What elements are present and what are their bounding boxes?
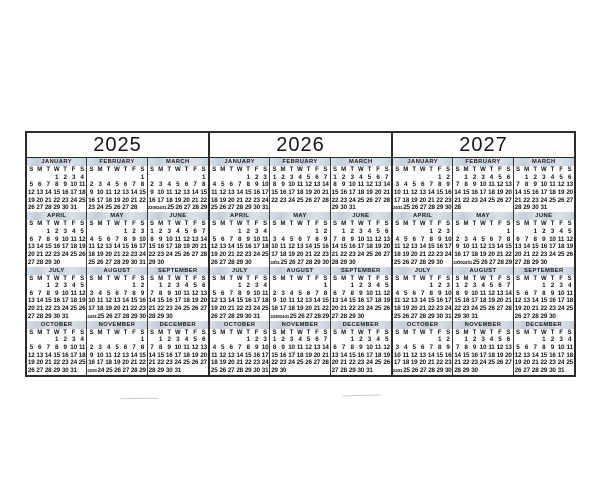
date-cell: 14 bbox=[514, 189, 523, 197]
date-cell: 1 bbox=[427, 228, 435, 236]
week-row: 18192021222324 bbox=[393, 305, 452, 313]
weekday-letter: T bbox=[365, 166, 374, 174]
week-row: 567891011 bbox=[514, 344, 574, 352]
weekday-letter: T bbox=[470, 220, 478, 228]
date-cell: 10 bbox=[365, 344, 374, 352]
date-cell: 30 bbox=[548, 313, 557, 321]
date-cell: 8 bbox=[138, 344, 146, 352]
date-cell: 26 bbox=[304, 360, 312, 368]
date-cell: 10 bbox=[156, 189, 165, 197]
month-name-label: MAY bbox=[270, 212, 329, 220]
weekday-letter: W bbox=[113, 329, 121, 337]
date-cell: 13 bbox=[313, 344, 321, 352]
date-cell: 4 bbox=[261, 228, 269, 236]
date-cell: 23 bbox=[548, 305, 557, 313]
date-cell: 25 bbox=[487, 197, 495, 205]
date-cell: 25 bbox=[393, 313, 401, 321]
date-cell: 29 bbox=[427, 313, 435, 321]
date-cell: 28 bbox=[113, 259, 121, 267]
empty-date-cell bbox=[444, 259, 452, 267]
empty-date-cell bbox=[279, 228, 287, 236]
week-row: 123 bbox=[393, 228, 452, 236]
week-row: 24⁄31252627282930 bbox=[270, 259, 329, 267]
date-cell: 22 bbox=[44, 251, 52, 259]
empty-date-cell bbox=[270, 228, 278, 236]
month-name-label: SEPTEMBER bbox=[331, 267, 391, 275]
date-cell: 13 bbox=[504, 344, 512, 352]
date-cell: 1 bbox=[130, 283, 138, 291]
weekday-header-row: SMTWTFS bbox=[453, 220, 512, 228]
month-2025-october: OCTOBERSMTWTFS12345678910111213141516171… bbox=[27, 321, 87, 375]
empty-date-cell bbox=[565, 259, 574, 267]
weekday-header-row: SMTWTFS bbox=[393, 275, 452, 283]
date-cell: 17 bbox=[393, 360, 401, 368]
date-cell: 22 bbox=[427, 305, 435, 313]
month-week-rows: 1234567891011121314151617181920212223242… bbox=[27, 228, 86, 266]
date-cell: 25 bbox=[78, 360, 86, 368]
month-name-label: DECEMBER bbox=[148, 321, 208, 329]
date-cell: 29 bbox=[540, 367, 549, 375]
weekday-letter: F bbox=[496, 166, 504, 174]
month-name-label: SEPTEMBER bbox=[148, 267, 208, 275]
date-cell: 8 bbox=[462, 344, 470, 352]
date-cell: 26 bbox=[78, 251, 86, 259]
date-cell: 28 bbox=[130, 205, 138, 213]
empty-date-cell bbox=[321, 367, 329, 375]
date-cell: 25 bbox=[289, 313, 297, 321]
month-name-label: JUNE bbox=[331, 212, 391, 220]
weekday-letter: M bbox=[35, 166, 43, 174]
month-name-label: FEBRUARY bbox=[87, 158, 146, 166]
weekday-letter: S bbox=[148, 329, 157, 337]
date-cell: 19 bbox=[304, 189, 312, 197]
week-row: 14151617181920 bbox=[514, 189, 574, 197]
empty-date-cell bbox=[382, 205, 391, 213]
weekday-letter: M bbox=[96, 220, 104, 228]
weekday-letter: S bbox=[514, 275, 523, 283]
weekday-letter: M bbox=[339, 166, 348, 174]
week-row: 123456 bbox=[331, 228, 391, 236]
date-cell: 19 bbox=[401, 251, 409, 259]
weekday-letter: M bbox=[156, 166, 165, 174]
date-cell: 20 bbox=[410, 305, 418, 313]
weekday-letter: W bbox=[296, 166, 304, 174]
weekday-letter: T bbox=[487, 166, 495, 174]
date-cell: 11 bbox=[401, 189, 409, 197]
week-row: 12 bbox=[270, 228, 329, 236]
weekday-letter: M bbox=[401, 275, 409, 283]
date-cell: 29 bbox=[522, 205, 531, 213]
date-cell: 14 bbox=[235, 189, 243, 197]
week-row: 123456 bbox=[148, 283, 208, 291]
date-cell: 15 bbox=[244, 189, 252, 197]
date-cell: 26 bbox=[182, 251, 191, 259]
week-row: 6789101112 bbox=[331, 344, 391, 352]
date-cell: 31 bbox=[252, 313, 260, 321]
date-cell: 3 bbox=[61, 283, 69, 291]
date-cell: 30 bbox=[244, 313, 252, 321]
empty-date-cell bbox=[462, 205, 470, 213]
date-cell: 29 bbox=[339, 259, 348, 267]
week-row: 2627282930 bbox=[210, 259, 269, 267]
weekday-letter: M bbox=[218, 220, 226, 228]
date-cell: 22 bbox=[339, 251, 348, 259]
weekday-letter: T bbox=[61, 166, 69, 174]
date-cell: 24 bbox=[365, 305, 374, 313]
month-week-rows: 1234567891011121314151617181920212223242… bbox=[270, 174, 329, 212]
date-cell: 25 bbox=[402, 367, 410, 375]
date-cell: 31 bbox=[470, 313, 478, 321]
date-cell: 27 bbox=[199, 305, 208, 313]
date-cell: 20 bbox=[304, 305, 312, 313]
empty-date-cell bbox=[479, 205, 487, 213]
date-cell: 16 bbox=[87, 360, 95, 368]
date-cell: 16 bbox=[453, 251, 461, 259]
date-cell: 22 bbox=[270, 197, 278, 205]
date-cell: 28 bbox=[504, 305, 512, 313]
date-cell: 13 bbox=[35, 189, 43, 197]
date-cell: 20 bbox=[218, 305, 226, 313]
date-cell: 29 bbox=[138, 367, 146, 375]
date-cell: 1 bbox=[156, 283, 165, 291]
date-cell: 8 bbox=[244, 344, 252, 352]
date-cell: 26 bbox=[365, 197, 374, 205]
date-cell: 11 bbox=[182, 344, 191, 352]
empty-date-cell bbox=[304, 367, 312, 375]
date-cell: 2 bbox=[540, 228, 549, 236]
weekday-letter: T bbox=[487, 220, 495, 228]
month-name-label: NOVEMBER bbox=[87, 321, 146, 329]
date-cell: 28 bbox=[331, 259, 340, 267]
week-row: 567891011 bbox=[27, 344, 86, 352]
week-row: 12345 bbox=[27, 228, 86, 236]
date-cell: 26 bbox=[191, 305, 200, 313]
year-panel-2027: 2027JANUARYSMTWTFS1234567891011121314151… bbox=[393, 133, 574, 375]
empty-date-cell bbox=[261, 259, 269, 267]
weekday-letter: T bbox=[165, 166, 174, 174]
weekday-letter: W bbox=[479, 166, 487, 174]
week-row: 2345678 bbox=[87, 344, 146, 352]
date-cell: 5 bbox=[78, 283, 86, 291]
weekday-letter: T bbox=[304, 166, 312, 174]
date-cell: 1 bbox=[339, 228, 348, 236]
month-2025-march: MARCHSMTWTFS1234567891011121314151617181… bbox=[148, 158, 208, 212]
date-cell: 21 bbox=[313, 305, 321, 313]
empty-date-cell bbox=[191, 367, 200, 375]
date-cell: 3 bbox=[357, 228, 366, 236]
date-cell: 21 bbox=[522, 251, 531, 259]
date-cell: 20 bbox=[514, 251, 523, 259]
date-cell: 22 bbox=[321, 305, 329, 313]
empty-date-cell bbox=[261, 313, 269, 321]
date-cell: 28 bbox=[427, 205, 435, 213]
weekday-letter: T bbox=[304, 220, 312, 228]
weekday-letter: W bbox=[418, 220, 426, 228]
weekday-letter: T bbox=[287, 166, 295, 174]
date-cell: 30 bbox=[138, 313, 146, 321]
week-row: 28293031 bbox=[514, 205, 574, 213]
month-name-label: AUGUST bbox=[87, 267, 146, 275]
empty-date-cell bbox=[313, 283, 321, 291]
date-cell: 28 bbox=[339, 313, 348, 321]
date-cell: 30 bbox=[279, 367, 287, 375]
empty-date-cell bbox=[504, 367, 512, 375]
empty-date-cell bbox=[487, 228, 495, 236]
empty-date-cell bbox=[557, 205, 566, 213]
date-cell: 16 bbox=[531, 189, 540, 197]
date-cell: 17 bbox=[87, 305, 95, 313]
weekday-letter: F bbox=[496, 220, 504, 228]
month-2027-january: JANUARYSMTWTFS12345678910111213141516171… bbox=[393, 158, 453, 212]
date-cell: 14 bbox=[191, 189, 200, 197]
date-cell: 19 bbox=[296, 305, 304, 313]
empty-date-cell bbox=[304, 205, 312, 213]
weekday-letter: S bbox=[444, 166, 452, 174]
date-cell: 1 bbox=[235, 283, 243, 291]
date-cell: 13 bbox=[121, 189, 129, 197]
date-cell: 28 bbox=[305, 259, 313, 267]
date-cell: 5 bbox=[382, 283, 391, 291]
date-cell: 19 bbox=[514, 305, 523, 313]
date-cell: 4 bbox=[401, 344, 409, 352]
month-2027-august: AUGUSTSMTWTFS123456789101112131415161718… bbox=[453, 267, 513, 321]
date-cell: 26 bbox=[401, 313, 409, 321]
month-name-label: SEPTEMBER bbox=[514, 267, 574, 275]
empty-date-cell bbox=[69, 313, 77, 321]
date-cell: 25 bbox=[78, 197, 86, 205]
month-2025-may: MAYSMTWTFS123456789101112131415161718192… bbox=[87, 212, 147, 266]
date-cell: 29 bbox=[505, 259, 513, 267]
week-row: 16171819202122 bbox=[270, 305, 329, 313]
date-cell: 2 bbox=[357, 283, 366, 291]
date-cell: 15 bbox=[199, 189, 208, 197]
week-row: 2930 bbox=[148, 259, 208, 267]
date-cell: 26 bbox=[496, 197, 504, 205]
week-row: 45678910 bbox=[210, 344, 269, 352]
date-cell: 27 bbox=[410, 259, 418, 267]
date-cell: 29 bbox=[462, 367, 470, 375]
date-cell: 9 bbox=[148, 189, 157, 197]
date-cell: 22 bbox=[44, 305, 52, 313]
weekday-letter: F bbox=[191, 166, 200, 174]
empty-date-cell bbox=[304, 283, 312, 291]
date-cell: 28 bbox=[235, 367, 243, 375]
date-cell: 21 bbox=[35, 305, 43, 313]
date-cell: 26 bbox=[218, 205, 226, 213]
weekday-letter: M bbox=[339, 329, 348, 337]
date-cell: 27 bbox=[227, 205, 235, 213]
date-cell: 30 bbox=[548, 367, 557, 375]
date-cell: 7 bbox=[199, 228, 208, 236]
date-cell: 20 bbox=[218, 251, 226, 259]
tri-year-calendar-card: 2025JANUARYSMTWTFS1234567891011121314151… bbox=[25, 131, 576, 377]
month-name-label: JULY bbox=[210, 267, 269, 275]
date-cell: 4 bbox=[69, 283, 77, 291]
date-cell: 25 bbox=[557, 251, 566, 259]
weekday-letter: M bbox=[218, 329, 226, 337]
month-week-rows: 1234567891011121314151617181920212223⁄30… bbox=[453, 228, 512, 266]
date-cell: 19 bbox=[479, 251, 487, 259]
empty-date-cell bbox=[418, 283, 426, 291]
week-row: 78910111213 bbox=[453, 344, 512, 352]
weekday-letter: S bbox=[148, 166, 157, 174]
weekday-letter: T bbox=[304, 275, 312, 283]
empty-date-cell bbox=[121, 283, 129, 291]
date-cell: 23 bbox=[462, 305, 470, 313]
weekday-header-row: SMTWTFS bbox=[331, 166, 391, 174]
date-cell: 26 bbox=[113, 205, 121, 213]
date-cell: 30 bbox=[244, 259, 252, 267]
month-2026-november: NOVEMBERSMTWTFS1234567891011121314151617… bbox=[270, 321, 330, 375]
weekday-letter: M bbox=[279, 220, 287, 228]
date-cell: 26 bbox=[557, 197, 566, 205]
date-cell: 9 bbox=[470, 344, 478, 352]
empty-date-cell bbox=[365, 259, 374, 267]
empty-date-cell bbox=[191, 313, 200, 321]
date-cell: 25 bbox=[565, 305, 574, 313]
date-cell: 30 bbox=[470, 367, 478, 375]
date-cell: 6 bbox=[418, 344, 426, 352]
weekday-letter: T bbox=[287, 275, 295, 283]
date-cell: 27 bbox=[199, 360, 208, 368]
empty-date-cell bbox=[113, 283, 121, 291]
date-cell: 22 bbox=[156, 305, 165, 313]
date-cell: 27 bbox=[104, 259, 112, 267]
weekday-letter: T bbox=[427, 329, 435, 337]
weekday-letter: S bbox=[27, 275, 35, 283]
date-cell: 26 bbox=[191, 360, 200, 368]
year-title-2025: 2025 bbox=[27, 133, 208, 158]
date-cell: 25 bbox=[69, 251, 77, 259]
week-row: 1234567 bbox=[453, 283, 512, 291]
date-cell: 11 bbox=[565, 344, 574, 352]
weekday-letter: M bbox=[218, 166, 226, 174]
empty-date-cell bbox=[287, 367, 295, 375]
empty-date-cell bbox=[548, 205, 557, 213]
weekday-letter: T bbox=[121, 275, 129, 283]
date-cell: 10 bbox=[96, 189, 104, 197]
date-cell: 25 bbox=[374, 360, 383, 368]
weekday-letter: S bbox=[270, 166, 278, 174]
date-cell: 23 bbox=[130, 251, 138, 259]
date-cell: 26 bbox=[175, 205, 183, 213]
weekday-letter: S bbox=[199, 166, 208, 174]
date-cell: 28 bbox=[122, 313, 130, 321]
date-cell: 26 bbox=[487, 305, 495, 313]
empty-date-cell bbox=[357, 205, 366, 213]
date-cell: 29 bbox=[235, 259, 243, 267]
weekday-letter: M bbox=[401, 220, 409, 228]
date-cell: 9 bbox=[357, 344, 366, 352]
date-cell: 17 bbox=[287, 189, 295, 197]
weekday-letter: T bbox=[244, 166, 252, 174]
date-cell: 26 bbox=[496, 360, 504, 368]
date-cell: 24⁄31 bbox=[393, 367, 402, 375]
date-cell: 26 bbox=[565, 251, 574, 259]
weekday-letter: S bbox=[453, 220, 461, 228]
week-row: 25262728293031 bbox=[393, 313, 452, 321]
date-cell: 14 bbox=[453, 189, 461, 197]
empty-date-cell bbox=[279, 283, 287, 291]
month-week-rows: 123456789101112131415161718192021222324⁄… bbox=[393, 174, 452, 212]
date-cell: 16 bbox=[148, 197, 157, 205]
date-cell: 2 bbox=[244, 228, 252, 236]
month-2026-december: DECEMBERSMTWTFS1234567891011121314151617… bbox=[331, 321, 391, 375]
date-cell: 27 bbox=[296, 259, 304, 267]
date-cell: 13 bbox=[199, 344, 208, 352]
weekday-letter: M bbox=[522, 220, 531, 228]
date-cell: 26 bbox=[374, 251, 383, 259]
date-cell: 15 bbox=[522, 189, 531, 197]
date-cell: 27 bbox=[313, 197, 321, 205]
month-week-rows: 123456789101112131415161718192021222324⁄… bbox=[87, 283, 146, 321]
empty-date-cell bbox=[557, 313, 566, 321]
weekday-letter: F bbox=[252, 166, 260, 174]
date-cell: 23 bbox=[138, 305, 146, 313]
weekday-letter: T bbox=[531, 329, 540, 337]
month-2027-march: MARCHSMTWTFS1234567891011121314151617181… bbox=[514, 158, 574, 212]
week-row: 22232425262728 bbox=[148, 251, 208, 259]
date-cell: 24 bbox=[287, 197, 295, 205]
empty-date-cell bbox=[87, 228, 95, 236]
weekday-letter: W bbox=[540, 166, 549, 174]
date-cell: 29 bbox=[322, 313, 330, 321]
date-cell: 22 bbox=[348, 305, 357, 313]
weekday-letter: T bbox=[410, 275, 418, 283]
month-2025-september: SEPTEMBERSMTWTFS123456789101112131415161… bbox=[148, 267, 208, 321]
date-cell: 19 bbox=[365, 189, 374, 197]
date-cell: 24 bbox=[479, 197, 487, 205]
empty-date-cell bbox=[296, 228, 304, 236]
date-cell: 27 bbox=[331, 313, 340, 321]
date-cell: 19 bbox=[401, 305, 409, 313]
month-2025-january: JANUARYSMTWTFS12345678910111213141516171… bbox=[27, 158, 87, 212]
date-cell: 19 bbox=[557, 189, 566, 197]
month-2027-november: NOVEMBERSMTWTFS1234567891011121314151617… bbox=[453, 321, 513, 375]
week-row: 19202122232425 bbox=[210, 305, 269, 313]
date-cell: 3 bbox=[174, 283, 183, 291]
empty-date-cell bbox=[393, 283, 401, 291]
empty-date-cell bbox=[210, 283, 218, 291]
date-cell: 23 bbox=[435, 251, 443, 259]
empty-date-cell bbox=[182, 367, 191, 375]
weekday-letter: F bbox=[557, 166, 566, 174]
date-cell: 31 bbox=[365, 367, 374, 375]
date-cell: 24 bbox=[479, 360, 487, 368]
date-cell: 5 bbox=[27, 344, 35, 352]
date-cell: 26 bbox=[411, 205, 419, 213]
date-cell: 29 bbox=[156, 313, 165, 321]
empty-date-cell bbox=[374, 205, 383, 213]
date-cell: 25 bbox=[296, 360, 304, 368]
weekday-header-row: SMTWTFS bbox=[514, 166, 574, 174]
date-cell: 3 bbox=[557, 283, 566, 291]
date-cell: 2 bbox=[435, 228, 443, 236]
weekday-letter: T bbox=[470, 166, 478, 174]
empty-date-cell bbox=[35, 228, 43, 236]
date-cell: 10 bbox=[174, 344, 183, 352]
date-cell: 25 bbox=[210, 367, 218, 375]
month-week-rows: 1234567891011121314151617181920212223242… bbox=[393, 228, 452, 266]
date-cell: 28 bbox=[453, 205, 461, 213]
date-cell: 17 bbox=[69, 189, 77, 197]
date-cell: 5 bbox=[514, 344, 523, 352]
date-cell: 28 bbox=[191, 205, 199, 213]
weekday-letter: M bbox=[96, 275, 104, 283]
year-title-2026: 2026 bbox=[210, 133, 391, 158]
empty-date-cell bbox=[470, 205, 478, 213]
date-cell: 25 bbox=[97, 313, 105, 321]
